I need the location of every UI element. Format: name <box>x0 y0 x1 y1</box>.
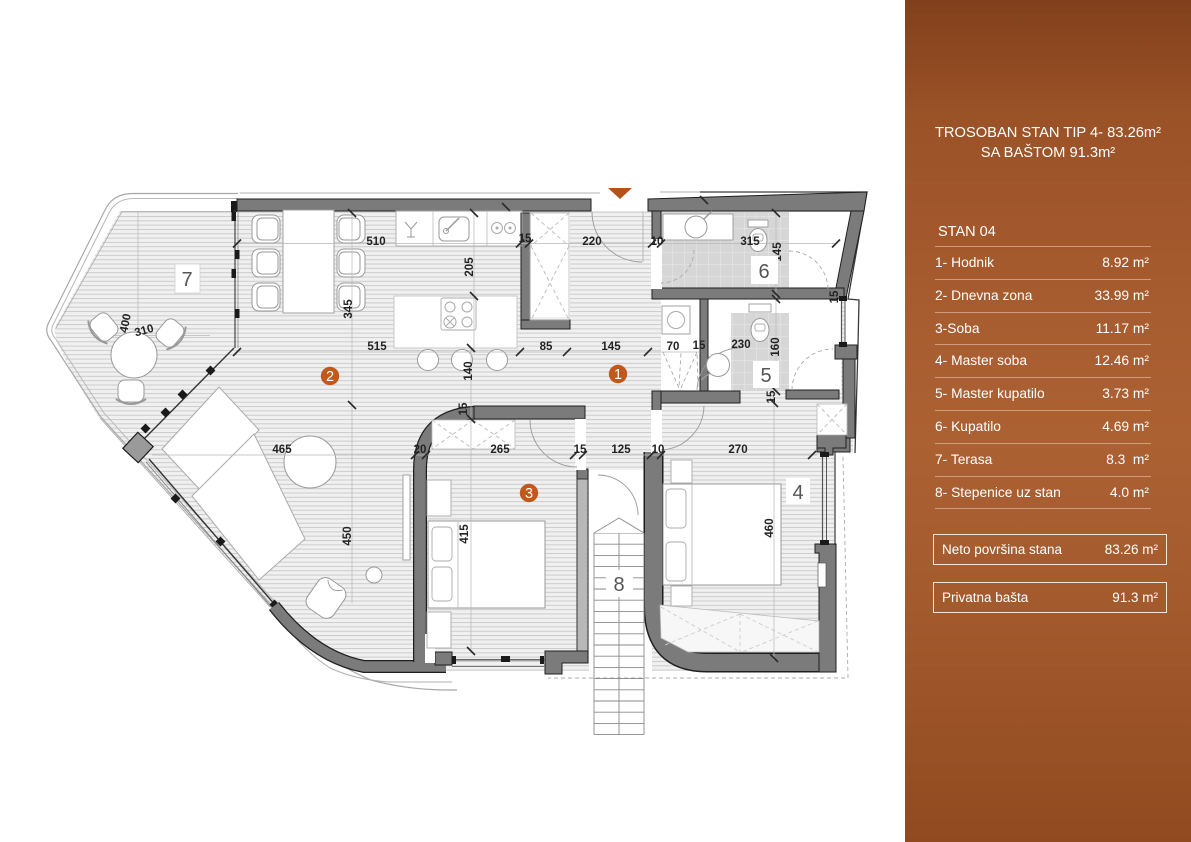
svg-text:145: 145 <box>601 341 621 353</box>
svg-text:415: 415 <box>459 524 471 544</box>
svg-text:15: 15 <box>829 290 841 303</box>
svg-text:220: 220 <box>582 236 601 248</box>
svg-text:85: 85 <box>540 341 553 353</box>
svg-text:20: 20 <box>414 444 427 456</box>
svg-text:515: 515 <box>367 341 387 353</box>
svg-text:510: 510 <box>366 236 385 248</box>
svg-text:6: 6 <box>758 261 769 283</box>
svg-text:345: 345 <box>343 299 355 319</box>
svg-text:15: 15 <box>574 444 587 456</box>
svg-text:5: 5 <box>760 365 771 387</box>
svg-text:1: 1 <box>614 367 622 383</box>
svg-text:160: 160 <box>770 337 782 356</box>
svg-text:460: 460 <box>764 518 776 537</box>
svg-text:3: 3 <box>525 486 533 502</box>
svg-text:4: 4 <box>792 482 803 504</box>
svg-text:265: 265 <box>490 444 510 456</box>
svg-text:205: 205 <box>464 257 476 277</box>
svg-text:10: 10 <box>652 444 665 456</box>
svg-text:315: 315 <box>740 236 760 248</box>
svg-text:140: 140 <box>463 361 475 380</box>
svg-text:15: 15 <box>693 340 706 352</box>
svg-text:15: 15 <box>458 402 470 415</box>
svg-text:15: 15 <box>519 233 532 245</box>
svg-text:8: 8 <box>613 574 624 596</box>
svg-text:15: 15 <box>766 390 778 403</box>
svg-text:10: 10 <box>651 236 664 248</box>
svg-text:465: 465 <box>272 444 292 456</box>
svg-text:125: 125 <box>611 444 631 456</box>
svg-text:270: 270 <box>728 444 747 456</box>
svg-text:450: 450 <box>342 526 354 545</box>
svg-text:230: 230 <box>731 339 750 351</box>
svg-text:7: 7 <box>181 269 192 291</box>
svg-text:2: 2 <box>326 369 334 385</box>
svg-text:70: 70 <box>667 341 680 353</box>
